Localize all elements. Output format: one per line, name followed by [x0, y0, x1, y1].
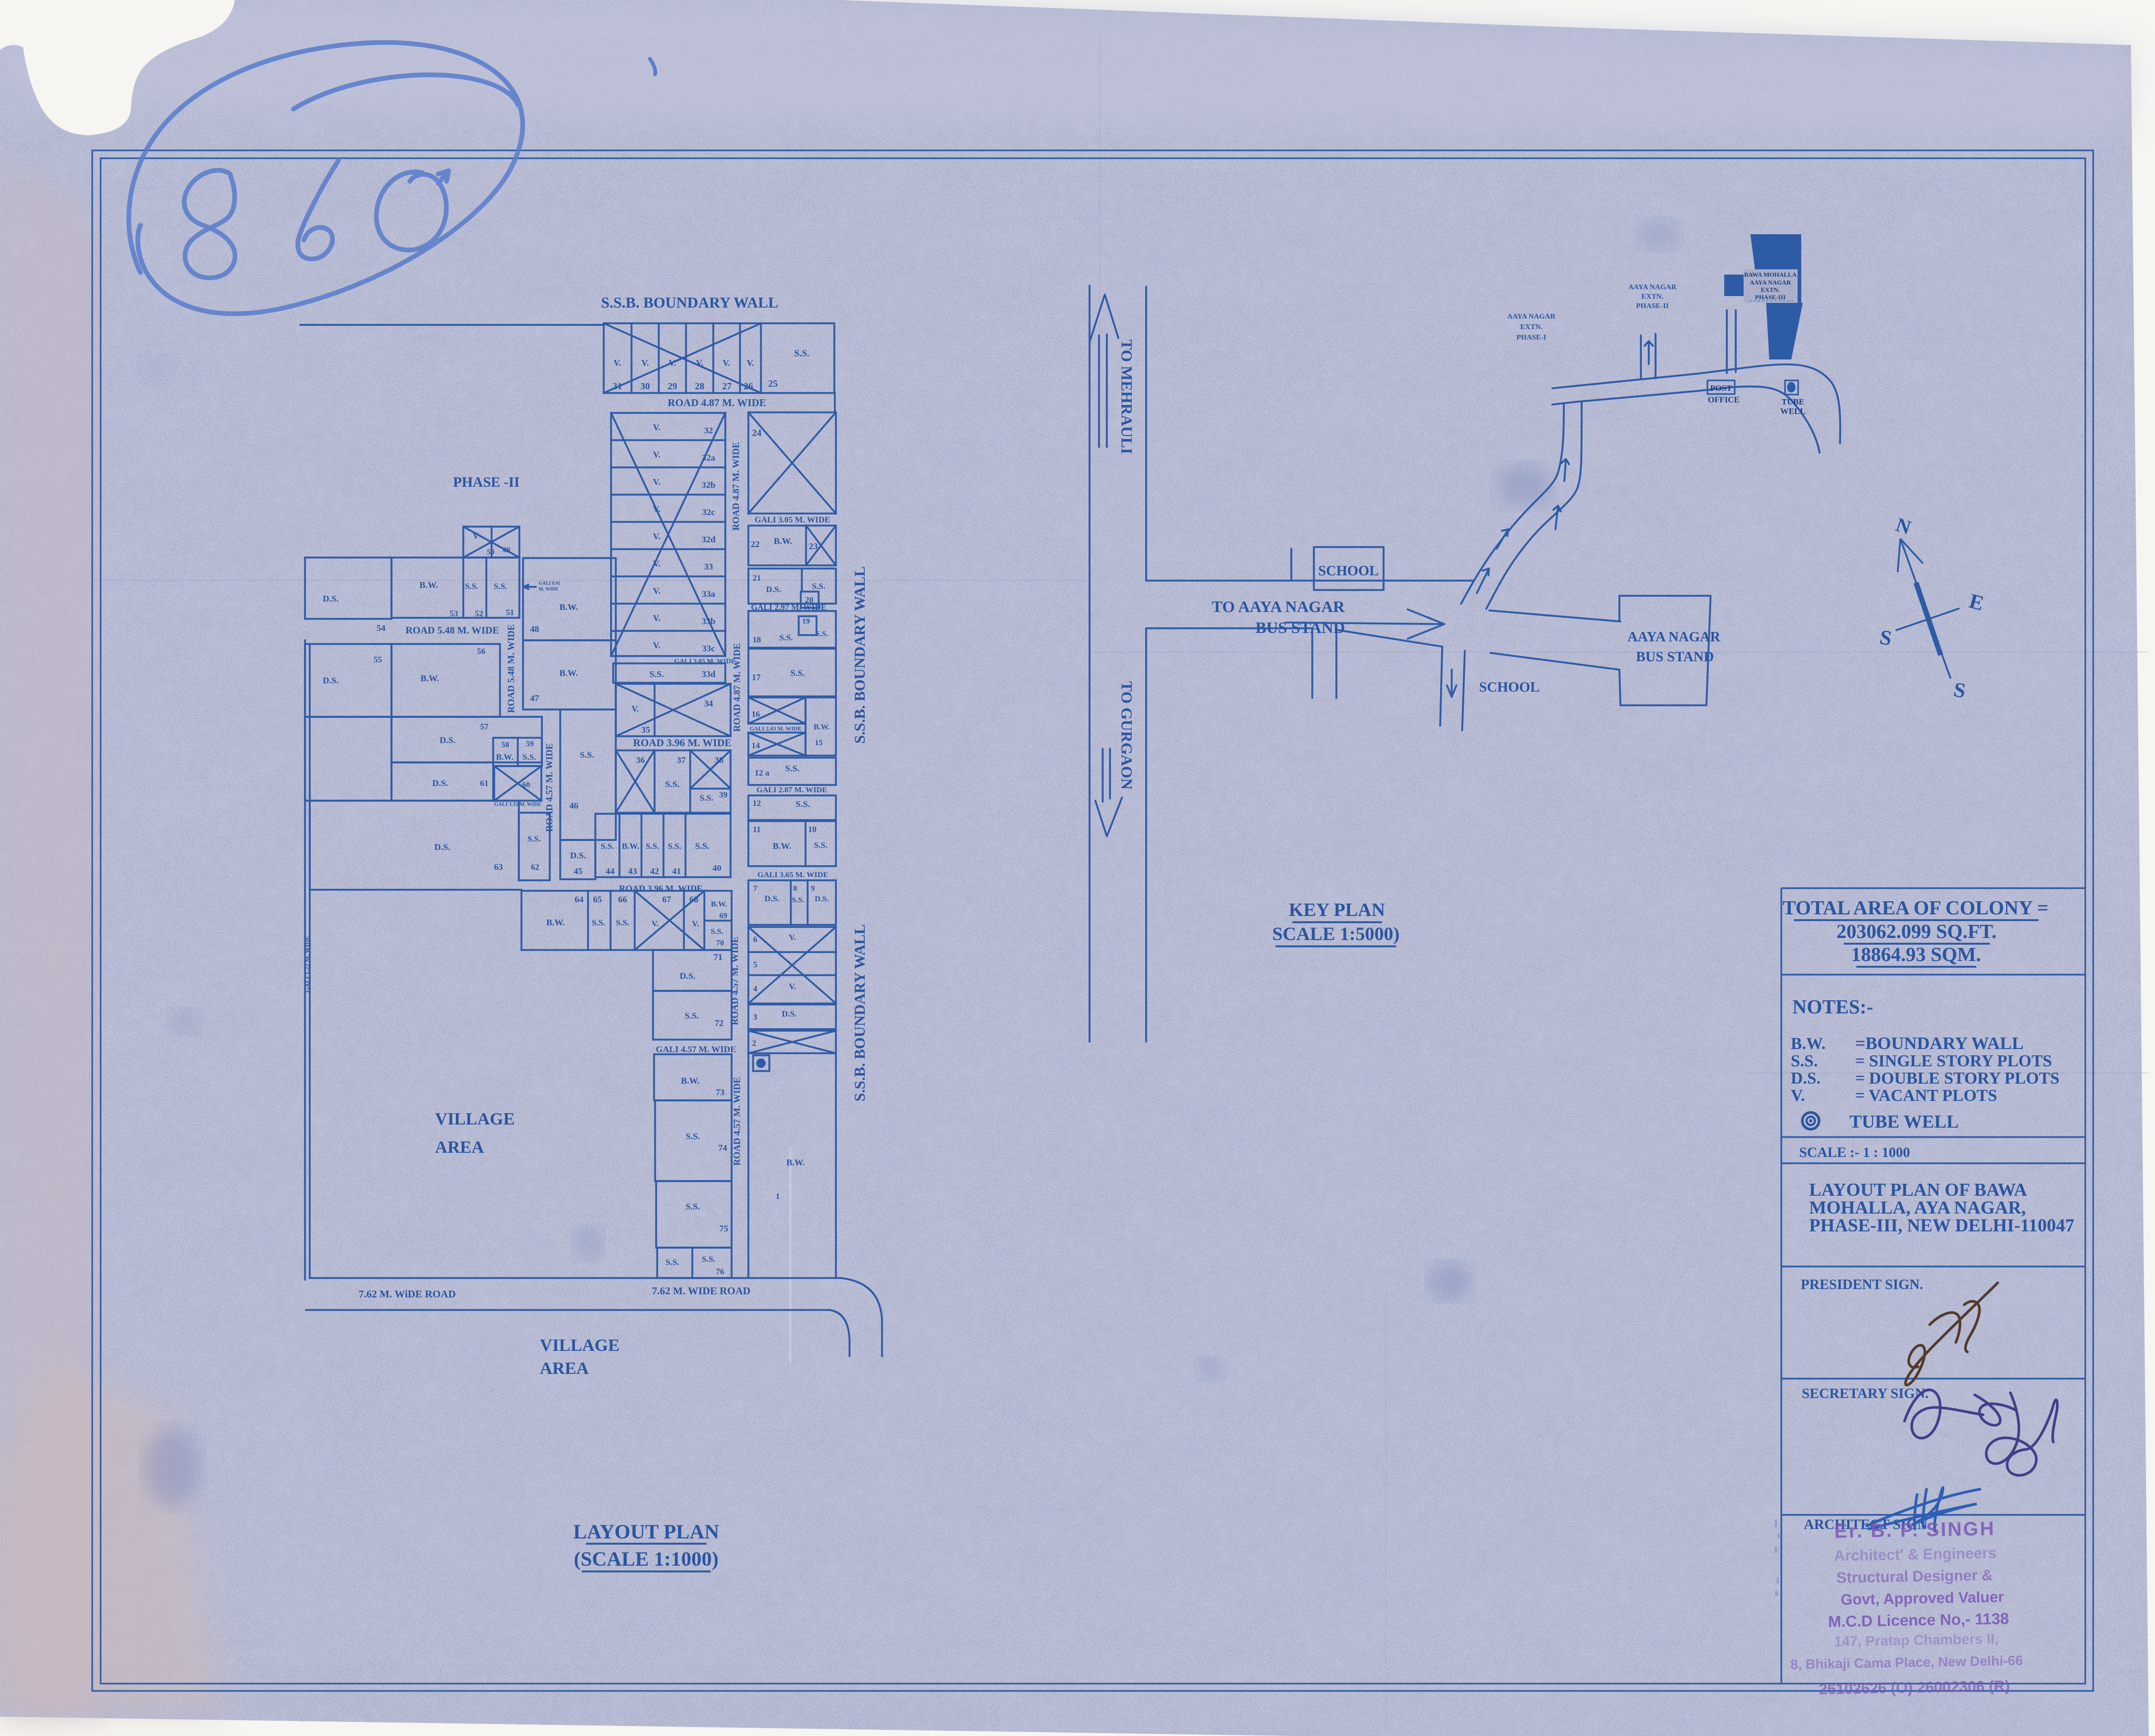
svg-text:3: 3	[753, 1013, 757, 1022]
svg-text:14: 14	[752, 741, 760, 750]
svg-text:66: 66	[618, 894, 627, 904]
svg-text:S.S.: S.S.	[702, 1255, 715, 1264]
svg-text:B.W.: B.W.	[546, 918, 564, 927]
svg-text:57: 57	[480, 723, 488, 731]
svg-text:BUS STAND: BUS STAND	[1256, 618, 1345, 637]
svg-text:V.: V.	[669, 358, 676, 368]
svg-text:10: 10	[808, 825, 817, 834]
svg-text:SCALE 1:5000): SCALE 1:5000)	[1272, 923, 1399, 944]
svg-text:AAYA NAGAR: AAYA NAGAR	[1750, 279, 1791, 286]
svg-text:D.S.: D.S.	[815, 895, 829, 903]
svg-text:AAYA NAGAR: AAYA NAGAR	[1628, 283, 1677, 291]
svg-text:26102626 (O) 26002306 (R): 26102626 (O) 26002306 (R)	[1819, 1678, 2010, 1698]
svg-text:73: 73	[716, 1087, 725, 1097]
svg-text:23: 23	[809, 541, 818, 551]
svg-text:ROAD 3.96 M. WIDE: ROAD 3.96 M. WIDE	[619, 883, 703, 893]
svg-text:S.S.: S.S.	[695, 841, 709, 851]
svg-text:S.S.: S.S.	[790, 668, 804, 678]
svg-text:= DOUBLE STORY PLOTS: = DOUBLE STORY PLOTS	[1855, 1068, 2060, 1087]
svg-text:33d: 33d	[702, 669, 716, 679]
svg-text:15: 15	[815, 739, 823, 747]
svg-text:D.S.: D.S.	[323, 594, 339, 604]
svg-text:PRESIDENT SIGN.: PRESIDENT SIGN.	[1801, 1276, 1923, 1292]
svg-text:32c: 32c	[702, 507, 715, 517]
svg-text:B.W.: B.W.	[711, 900, 727, 909]
svg-text:24: 24	[752, 428, 761, 438]
svg-text:ROAD 4.57 M. WIDE: ROAD 4.57 M. WIDE	[730, 936, 740, 1025]
svg-text:GALI 3.65 M. WIDE: GALI 3.65 M. WIDE	[757, 871, 828, 879]
svg-text:V.: V.	[651, 920, 659, 929]
svg-text:32b: 32b	[702, 480, 715, 490]
svg-text:B.W.: B.W.	[1791, 1034, 1825, 1053]
svg-text:D.S.: D.S.	[765, 894, 779, 903]
svg-text:Structural Designer &: Structural Designer &	[1836, 1567, 1993, 1587]
svg-text:S.S.: S.S.	[465, 582, 478, 591]
svg-text:8: 8	[793, 885, 797, 893]
svg-text:WELL: WELL	[1780, 407, 1805, 416]
svg-text:S.S.B. BOUNDARY WALL: S.S.B. BOUNDARY WALL	[601, 294, 778, 311]
svg-text:22: 22	[751, 539, 760, 549]
svg-text:203062.099 SQ.FT.: 203062.099 SQ.FT.	[1836, 921, 1996, 943]
svg-text:GALI 3.05 M. WIDE: GALI 3.05 M. WIDE	[755, 516, 830, 525]
svg-text:60: 60	[523, 781, 530, 789]
svg-text:6: 6	[753, 935, 757, 944]
svg-text:72: 72	[715, 1018, 724, 1028]
svg-text:11: 11	[753, 825, 760, 834]
svg-text:B.W.: B.W.	[622, 842, 639, 851]
svg-text:28: 28	[695, 381, 704, 391]
svg-text:B.W.: B.W.	[420, 673, 439, 683]
svg-text:V.: V.	[696, 358, 703, 368]
svg-text:B.W.: B.W.	[496, 753, 513, 762]
svg-text:7: 7	[753, 885, 757, 893]
svg-text:S.S.: S.S.	[685, 1131, 700, 1141]
svg-text:147, Pratap Chambers II,: 147, Pratap Chambers II,	[1834, 1631, 1998, 1649]
svg-text:31: 31	[613, 381, 622, 391]
svg-text:35: 35	[641, 725, 650, 735]
svg-text:1: 1	[776, 1192, 780, 1201]
svg-text:46: 46	[570, 801, 579, 811]
svg-text:5: 5	[753, 960, 757, 969]
svg-text:TOTAL AREA OF COLONY =: TOTAL AREA OF COLONY =	[1782, 897, 2048, 919]
svg-text:S.S.: S.S.	[1791, 1051, 1818, 1070]
svg-text:34: 34	[704, 698, 714, 708]
svg-text:B.W.: B.W.	[813, 723, 830, 731]
svg-text:S.S.: S.S.	[785, 763, 799, 773]
svg-text:76: 76	[716, 1268, 724, 1276]
svg-text:ROAD 4.57 M. WIDE: ROAD 4.57 M. WIDE	[544, 743, 554, 832]
svg-text:S.S.: S.S.	[646, 842, 659, 851]
svg-text:74: 74	[719, 1143, 728, 1153]
svg-text:GALI 4.57 M. WIDE: GALI 4.57 M. WIDE	[656, 1044, 736, 1054]
svg-text:B.W.: B.W.	[774, 536, 792, 546]
svg-text:SCHOOL: SCHOOL	[1479, 679, 1540, 695]
svg-text:21: 21	[753, 574, 761, 583]
svg-text:67: 67	[662, 894, 672, 904]
svg-text:7.62 M. WiDE ROAD: 7.62 M. WiDE ROAD	[358, 1289, 455, 1300]
svg-text:33a: 33a	[702, 589, 715, 599]
svg-text:B.W.: B.W.	[772, 841, 791, 851]
svg-text:B.W.: B.W.	[559, 602, 578, 612]
svg-text:53: 53	[450, 609, 458, 618]
svg-text:12 a: 12 a	[755, 769, 769, 778]
svg-text:Govt, Approved Valuer: Govt, Approved Valuer	[1841, 1589, 2004, 1608]
svg-text:V.: V.	[653, 504, 660, 514]
svg-text:D.S.: D.S.	[1791, 1068, 1821, 1087]
svg-text:S.S.: S.S.	[685, 1202, 700, 1211]
svg-text:SCHOOL: SCHOOL	[1318, 563, 1379, 578]
svg-text:51: 51	[506, 608, 514, 617]
svg-text:M.C.D Licence No,- 1138: M.C.D Licence No,- 1138	[1828, 1610, 2009, 1631]
svg-text:Architect' & Engineers: Architect' & Engineers	[1834, 1545, 1996, 1564]
svg-text:TO GURGAON: TO GURGAON	[1118, 681, 1135, 790]
svg-text:V.: V.	[632, 704, 639, 714]
svg-text:V.: V.	[653, 640, 660, 650]
svg-text:S.S.: S.S.	[527, 835, 541, 844]
svg-text:29: 29	[668, 381, 677, 391]
svg-text:45: 45	[574, 866, 583, 876]
svg-text:S.S.: S.S.	[601, 842, 614, 851]
svg-text:OFFICE: OFFICE	[1708, 396, 1739, 405]
svg-text:NOTES:-: NOTES:-	[1792, 996, 1873, 1018]
svg-text:62: 62	[531, 863, 539, 872]
svg-text:2: 2	[752, 1039, 756, 1048]
svg-text:(SCALE 1:1000): (SCALE 1:1000)	[574, 1548, 719, 1570]
svg-text:52: 52	[475, 609, 483, 618]
svg-text:19: 19	[802, 617, 810, 626]
svg-text:49: 49	[503, 546, 510, 554]
svg-text:S.S.: S.S.	[592, 919, 605, 927]
svg-text:17: 17	[752, 672, 761, 682]
svg-text:S.S.: S.S.	[792, 896, 804, 904]
svg-text:B.W.: B.W.	[786, 1158, 804, 1167]
svg-text:S.S.: S.S.	[616, 919, 629, 927]
svg-text:61: 61	[480, 779, 488, 788]
svg-text:GALI 2.97 M. WIDE: GALI 2.97 M. WIDE	[751, 603, 826, 612]
svg-text:V.: V.	[653, 422, 660, 432]
svg-text:GALI 3.05 M. WIDE: GALI 3.05 M. WIDE	[674, 657, 735, 665]
svg-text:41: 41	[672, 866, 681, 876]
svg-text:48: 48	[530, 624, 539, 634]
svg-text:16: 16	[752, 710, 760, 719]
svg-text:PHASE-II: PHASE-II	[1636, 302, 1669, 310]
svg-text:32a: 32a	[702, 453, 715, 463]
svg-text:D.S.: D.S.	[570, 850, 586, 860]
svg-text:69: 69	[720, 912, 727, 920]
svg-text:TO AAYA NAGAR: TO AAYA NAGAR	[1212, 597, 1345, 616]
svg-text:75: 75	[720, 1224, 728, 1233]
svg-text:SCALE :- 1 : 1000: SCALE :- 1 : 1000	[1799, 1144, 1910, 1160]
svg-text:AREA: AREA	[540, 1359, 589, 1378]
svg-text:D.S.: D.S.	[782, 1010, 797, 1019]
svg-text:V.: V.	[653, 613, 660, 623]
svg-text:GALI 2.87 M. WIDE: GALI 2.87 M. WIDE	[756, 786, 827, 794]
svg-text:S.S.: S.S.	[812, 582, 825, 591]
svg-text:30: 30	[640, 381, 650, 391]
svg-text:43: 43	[628, 866, 637, 876]
svg-text:LAYOUT PLAN: LAYOUT PLAN	[573, 1521, 719, 1543]
svg-text:33b: 33b	[702, 616, 715, 626]
svg-text:S.S.B. BOUNDARY WALL: S.S.B. BOUNDARY WALL	[852, 566, 868, 744]
svg-text:PHASE -II: PHASE -II	[453, 474, 520, 490]
svg-text:71: 71	[714, 952, 723, 962]
svg-text:59: 59	[526, 740, 534, 748]
svg-text:55: 55	[374, 656, 382, 664]
svg-text:40: 40	[713, 863, 722, 873]
svg-text:S.S.: S.S.	[815, 630, 828, 638]
svg-text:KEY PLAN: KEY PLAN	[1289, 899, 1385, 920]
svg-text:TO MEHRAULI: TO MEHRAULI	[1118, 340, 1135, 454]
svg-text:V.: V.	[653, 559, 660, 569]
svg-text:V.: V.	[653, 586, 660, 596]
svg-text:D.S.: D.S.	[766, 585, 781, 594]
svg-text:EXTN.: EXTN.	[1520, 323, 1542, 331]
svg-text:EXTN.: EXTN.	[1761, 286, 1780, 293]
svg-text:27: 27	[722, 381, 732, 391]
svg-text:47: 47	[530, 693, 540, 703]
svg-text:38: 38	[715, 755, 724, 765]
svg-text:7.62 M. WIDE ROAD: 7.62 M. WIDE ROAD	[652, 1285, 750, 1297]
svg-text:36: 36	[636, 755, 645, 765]
svg-text:V.: V.	[692, 920, 699, 929]
svg-text:ROAD 3.96 M. WIDE: ROAD 3.96 M. WIDE	[633, 737, 732, 749]
svg-text:S.S.: S.S.	[494, 582, 507, 591]
svg-text:S.S.: S.S.	[668, 842, 681, 851]
svg-text:BAWA MOHALLA: BAWA MOHALLA	[1744, 271, 1797, 278]
svg-text:ROAD 4.87 M. WIDE: ROAD 4.87 M. WIDE	[732, 643, 742, 731]
svg-text:39: 39	[719, 791, 727, 800]
svg-text:70: 70	[716, 939, 724, 947]
svg-text:B.W.: B.W.	[419, 580, 438, 590]
svg-text:32d: 32d	[702, 534, 716, 544]
svg-text:B.W.: B.W.	[559, 668, 578, 678]
svg-text:V.: V.	[1791, 1086, 1805, 1105]
svg-text:AREA: AREA	[435, 1138, 484, 1157]
svg-text:V.: V.	[641, 358, 649, 368]
svg-text:S.S.: S.S.	[580, 750, 594, 760]
svg-text:D.S.: D.S.	[434, 842, 450, 852]
svg-text:56: 56	[477, 647, 485, 656]
svg-text:12: 12	[753, 799, 761, 808]
svg-text:S.S.: S.S.	[684, 1011, 699, 1021]
svg-text:ROAD 4.87 M. WIDE: ROAD 4.87 M. WIDE	[668, 397, 766, 409]
svg-text:S.S.: S.S.	[665, 779, 679, 789]
svg-text:33c: 33c	[702, 643, 715, 653]
svg-text:M. WIDE: M. WIDE	[539, 586, 559, 592]
svg-text:9: 9	[811, 885, 815, 893]
svg-text:SECRETARY SIGN.: SECRETARY SIGN.	[1802, 1385, 1929, 1401]
svg-text:AAYA NAGAR: AAYA NAGAR	[1507, 313, 1556, 321]
svg-text:V.: V.	[614, 358, 621, 368]
svg-text:GALI 1.22 M. WIDE: GALI 1.22 M. WIDE	[303, 936, 311, 992]
svg-text:ROAD 4.87 M. WIDE: ROAD 4.87 M. WIDE	[731, 442, 741, 530]
svg-text:S.S.: S.S.	[796, 799, 810, 809]
svg-text:S.S.: S.S.	[711, 927, 723, 936]
svg-text:D.S.: D.S.	[432, 778, 448, 788]
svg-text:V.: V.	[789, 933, 796, 942]
svg-text:S.S.: S.S.	[779, 634, 793, 642]
svg-text:42: 42	[650, 866, 659, 876]
svg-text:GALI 0.91: GALI 0.91	[539, 581, 561, 586]
svg-text:PHASE-III, NEW DELHI-110047: PHASE-III, NEW DELHI-110047	[1809, 1215, 2074, 1236]
svg-text:18864.93 SQM.: 18864.93 SQM.	[1851, 944, 1981, 966]
svg-text:GALI 2.43 M. WIDE: GALI 2.43 M. WIDE	[749, 726, 801, 732]
svg-text:V.: V.	[789, 982, 796, 991]
svg-text:AAYA NAGAR: AAYA NAGAR	[1627, 629, 1721, 645]
svg-text:68: 68	[690, 894, 699, 904]
svg-text:ROAD 5.48 M. WIDE: ROAD 5.48 M. WIDE	[406, 625, 499, 636]
svg-text:ROAD 5.48 M. WIDE: ROAD 5.48 M. WIDE	[506, 624, 516, 713]
svg-text:58: 58	[502, 741, 509, 749]
svg-text:ROAD 4.57 M. WIDE: ROAD 4.57 M. WIDE	[732, 1077, 742, 1165]
svg-text:33: 33	[704, 562, 713, 572]
svg-text:37: 37	[677, 755, 687, 765]
svg-text:D.S.: D.S.	[323, 675, 339, 685]
svg-text:TUBE: TUBE	[1781, 398, 1804, 407]
svg-text:65: 65	[593, 894, 602, 904]
svg-text:S.S.: S.S.	[794, 348, 809, 358]
svg-text:S.S.: S.S.	[523, 753, 536, 762]
svg-text:VILLAGE: VILLAGE	[435, 1110, 515, 1129]
svg-text:S.S.: S.S.	[666, 1258, 679, 1267]
svg-text:26: 26	[744, 381, 753, 391]
svg-text:POST: POST	[1710, 384, 1732, 393]
svg-text:BUS STAND: BUS STAND	[1636, 649, 1714, 664]
svg-text:25: 25	[768, 378, 778, 389]
svg-text:50: 50	[487, 548, 495, 556]
svg-text:V: V	[473, 532, 479, 541]
svg-text:= VACANT PLOTS: = VACANT PLOTS	[1855, 1086, 1997, 1105]
svg-text:D.S.: D.S.	[680, 971, 695, 981]
svg-text:S.S.: S.S.	[814, 841, 828, 850]
svg-text:VILLAGE: VILLAGE	[540, 1336, 619, 1355]
svg-text:4: 4	[753, 985, 757, 993]
svg-text:S.S.: S.S.	[700, 794, 713, 803]
svg-text:EXTN.: EXTN.	[1641, 293, 1663, 301]
svg-text:V.: V.	[653, 477, 660, 487]
svg-text:V.: V.	[653, 450, 660, 460]
svg-text:44: 44	[606, 866, 615, 876]
svg-text:32: 32	[704, 425, 713, 435]
svg-text:18: 18	[753, 636, 761, 645]
svg-text:B.W.: B.W.	[681, 1076, 699, 1086]
svg-text:GALI 3.35 M. WIDE: GALI 3.35 M. WIDE	[494, 802, 541, 807]
svg-text:54: 54	[377, 623, 386, 633]
svg-text:V.: V.	[747, 358, 754, 368]
svg-text:V.: V.	[653, 531, 660, 541]
svg-text:64: 64	[575, 894, 584, 904]
svg-text:S.S.: S.S.	[649, 669, 663, 679]
svg-text:D.S.: D.S.	[440, 735, 455, 745]
svg-text:S.S.B. BOUNDARY WALL: S.S.B. BOUNDARY WALL	[852, 924, 868, 1101]
svg-text:63: 63	[494, 862, 503, 872]
svg-text:=BOUNDARY WALL: =BOUNDARY WALL	[1855, 1034, 2023, 1053]
svg-text:Er. B. P. SINGH: Er. B. P. SINGH	[1834, 1517, 1996, 1542]
svg-text:TUBE WELL: TUBE WELL	[1849, 1111, 1958, 1132]
svg-text:PHASE-III: PHASE-III	[1755, 293, 1786, 301]
svg-text:PHASE-I: PHASE-I	[1517, 334, 1547, 342]
svg-text:= SINGLE STORY PLOTS: = SINGLE STORY PLOTS	[1855, 1051, 2052, 1070]
svg-text:V.: V.	[723, 358, 730, 368]
